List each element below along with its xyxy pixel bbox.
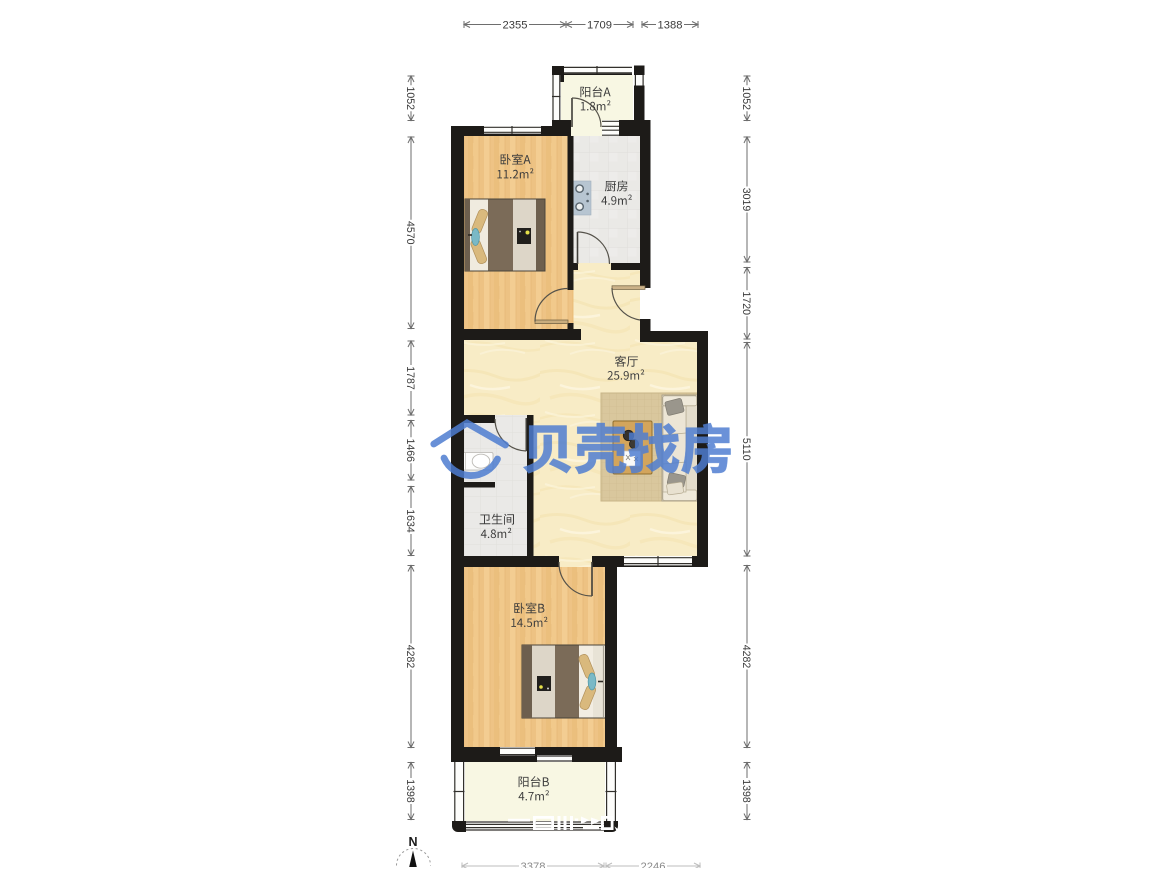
svg-text:3019: 3019: [740, 188, 752, 212]
svg-text:1709: 1709: [587, 20, 612, 32]
svg-text:1052: 1052: [740, 86, 752, 110]
svg-text:1388: 1388: [658, 20, 683, 32]
svg-text:1466: 1466: [404, 438, 416, 462]
svg-text:4570: 4570: [404, 221, 416, 245]
svg-text:4282: 4282: [404, 645, 416, 669]
svg-text:1787: 1787: [404, 366, 416, 390]
svg-text:2355: 2355: [503, 20, 528, 32]
svg-text:4282: 4282: [740, 645, 752, 669]
svg-text:1052: 1052: [404, 86, 416, 110]
svg-text:1720: 1720: [740, 291, 752, 315]
svg-text:1398: 1398: [740, 779, 752, 803]
svg-text:1634: 1634: [404, 509, 416, 533]
svg-text:5110: 5110: [740, 438, 752, 461]
svg-text:N: N: [408, 835, 417, 849]
svg-text:1398: 1398: [404, 779, 416, 803]
